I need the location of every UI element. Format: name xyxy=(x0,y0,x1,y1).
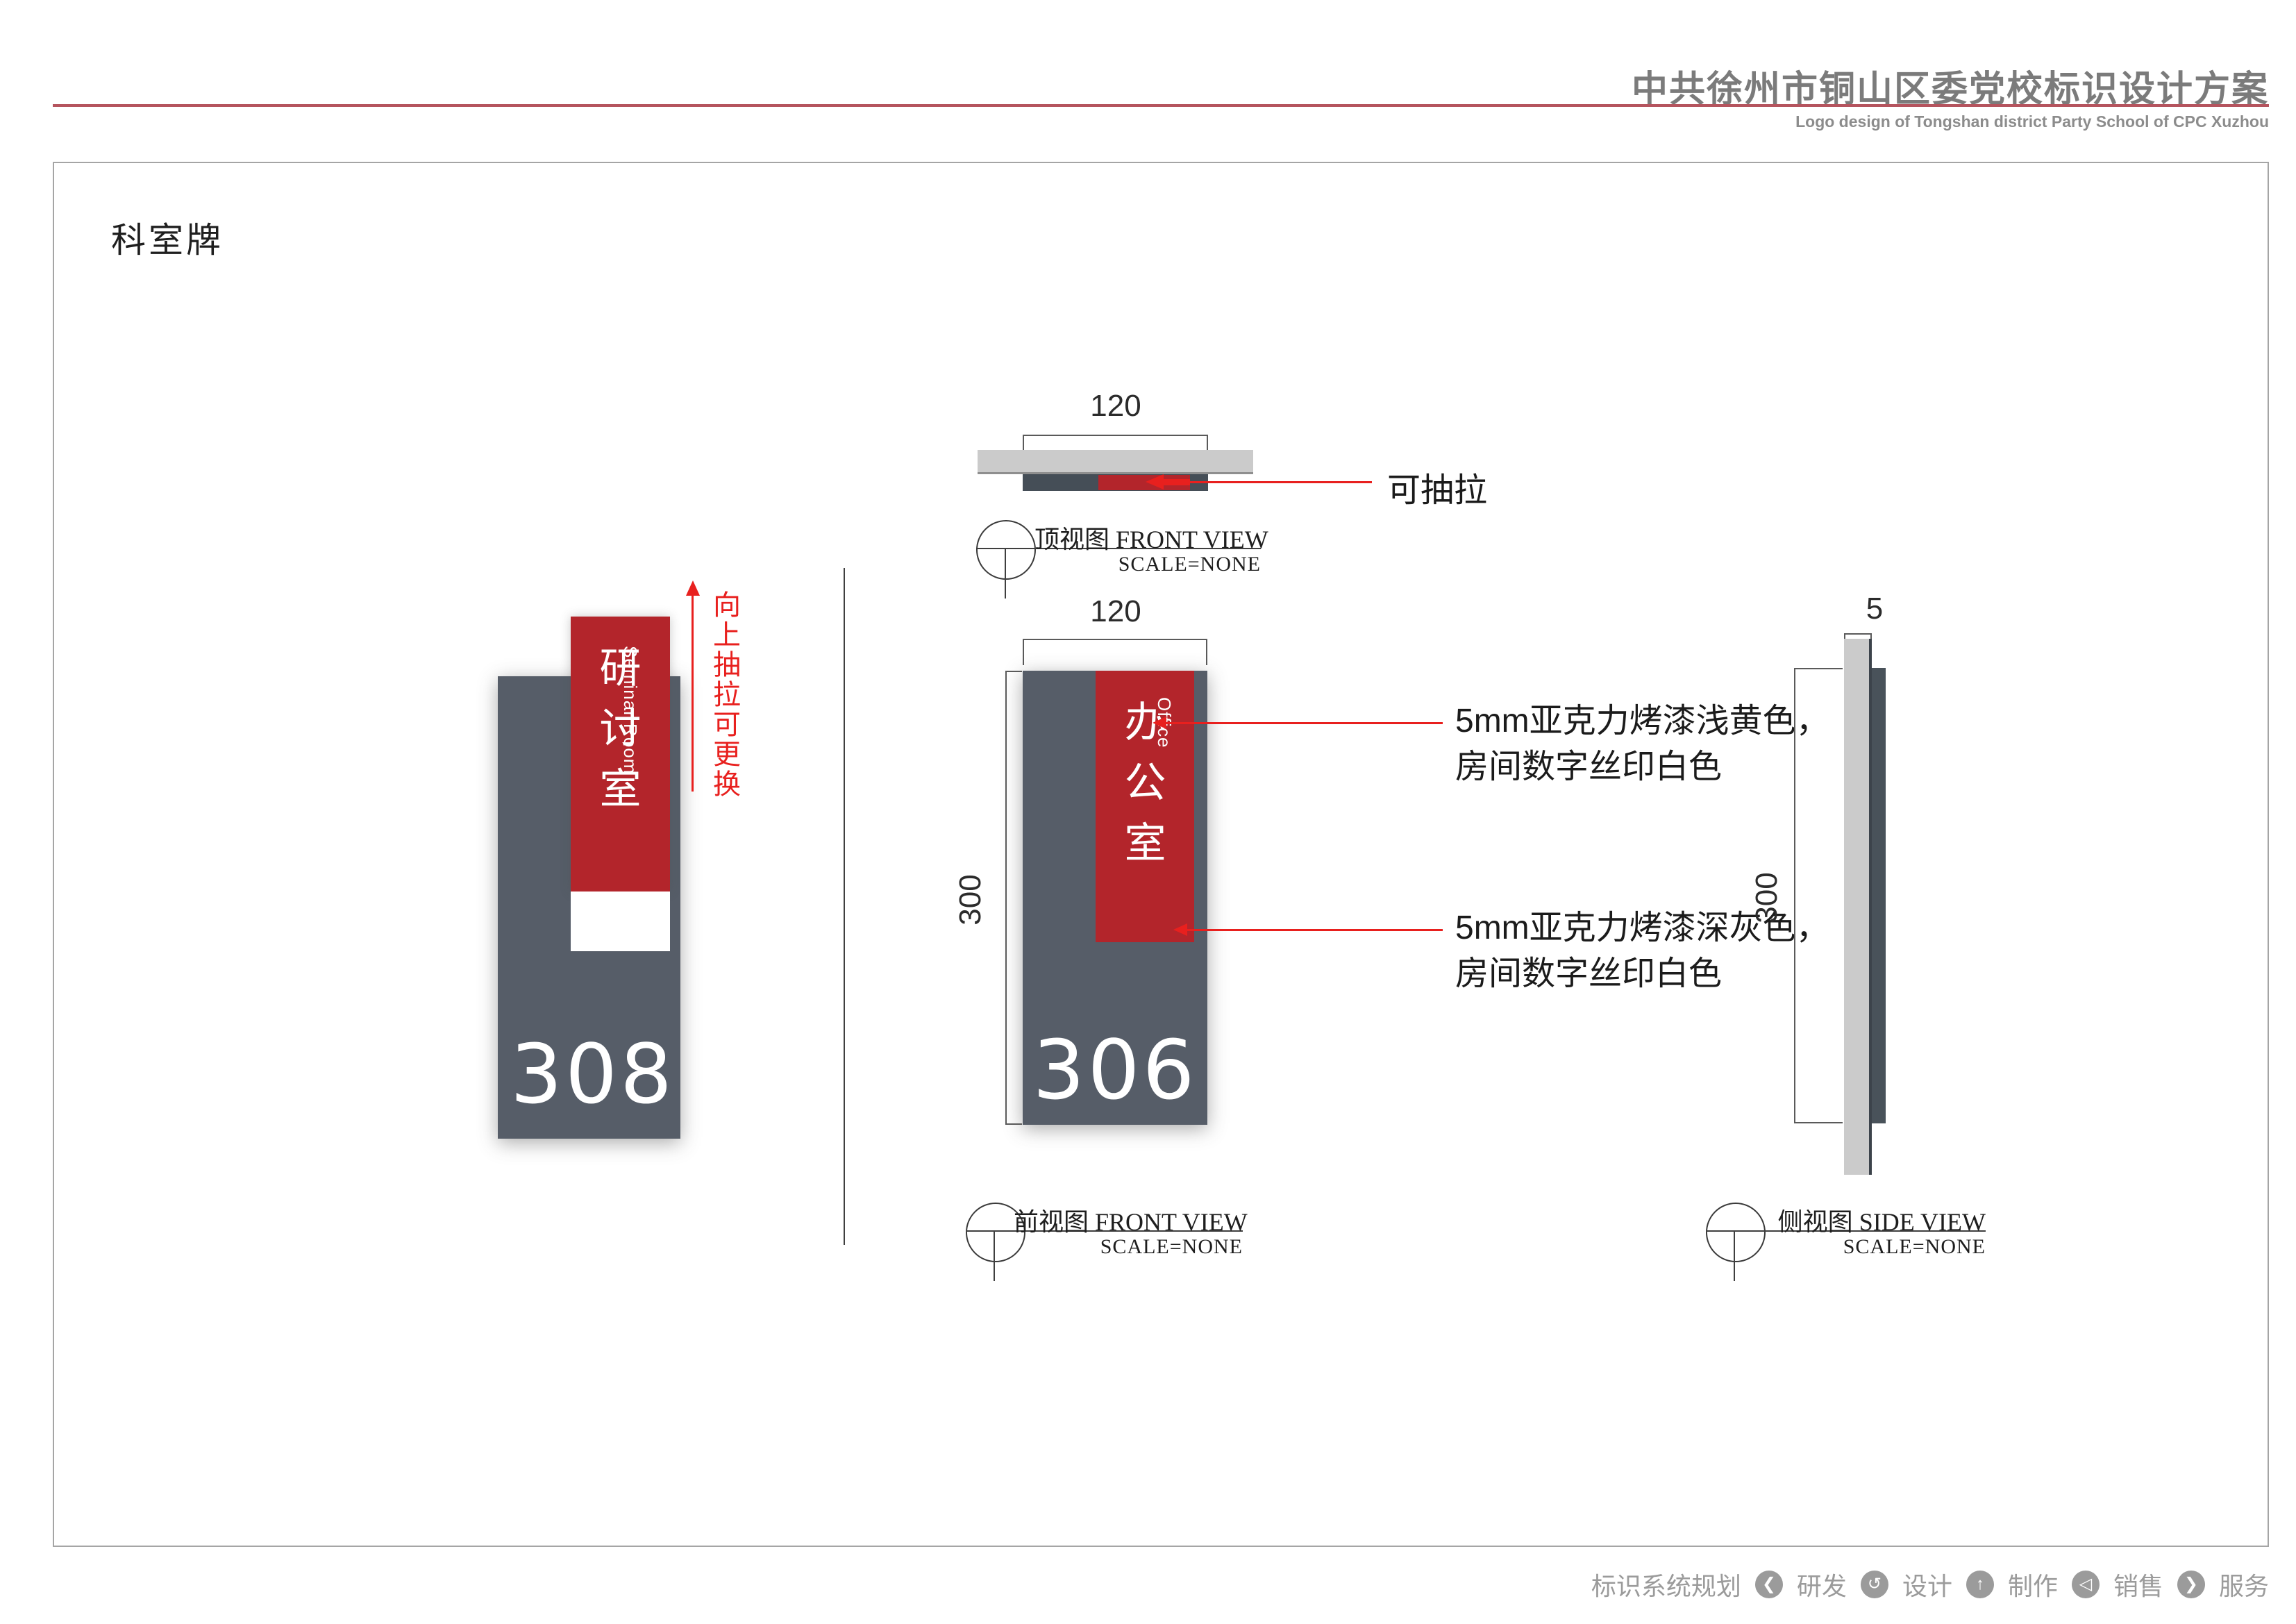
view-label-en: FRONT VIEW xyxy=(1095,1208,1248,1236)
dimension-tick xyxy=(1023,639,1024,665)
seminar-room-number: 308 xyxy=(505,1026,680,1122)
side-view-label: 侧视图 SIDE VIEW xyxy=(1750,1202,1986,1238)
dimension-tick xyxy=(1005,671,1022,672)
leader-arrow-icon xyxy=(1173,923,1187,936)
footer-process-bar: 标识系统规划 ❮ 研发 ↺ 设计 ↑ 制作 ◁ 销售 ❯ 服务 xyxy=(1591,1566,2269,1602)
arrow-up-icon: ↑ xyxy=(1966,1571,1994,1598)
side-view-thickness-dim: 5 xyxy=(1847,592,1902,626)
page-subtitle: Logo design of Tongshan district Party S… xyxy=(1795,112,2269,131)
dimension-line xyxy=(1844,633,1872,635)
top-view-scale: SCALE=NONE xyxy=(1034,553,1261,576)
view-label-cn: 顶视图 xyxy=(1034,526,1109,553)
front-view-height-dim: 300 xyxy=(953,858,988,941)
side-view-height-dim: 300 xyxy=(1750,856,1784,939)
pull-up-arrow-icon xyxy=(686,580,700,596)
seminar-sign-slot xyxy=(571,891,670,951)
pull-arrow-icon xyxy=(1146,474,1164,489)
side-acrylic-bar xyxy=(1844,639,1872,1175)
header-rule xyxy=(53,104,2269,107)
footer-item-rnd: 研发 xyxy=(1797,1566,1847,1602)
leader-line xyxy=(1186,929,1443,931)
leader-line xyxy=(1165,722,1443,724)
footer-item-design: 设计 xyxy=(1902,1566,1952,1602)
view-reference-stem xyxy=(994,1231,995,1281)
front-view-label: 前视图 FRONT VIEW xyxy=(1014,1202,1243,1238)
dimension-line xyxy=(1023,435,1208,436)
dimension-line xyxy=(1023,639,1207,640)
pull-arrow-body xyxy=(1162,479,1190,485)
dimension-line xyxy=(1794,668,1795,1123)
chevron-right-icon: ❯ xyxy=(2177,1571,2205,1598)
red-acrylic-note: 5mm亚克力烤漆浅黄色， 房间数字丝印白色 xyxy=(1455,698,1829,790)
view-label-cn: 前视图 xyxy=(1014,1208,1089,1236)
top-view-label: 顶视图 FRONT VIEW xyxy=(1034,519,1261,555)
leader-arrow-icon xyxy=(1153,717,1166,729)
view-reference-stem xyxy=(1005,549,1006,598)
rotate-icon: ↺ xyxy=(1861,1571,1888,1598)
side-view-scale: SCALE=NONE xyxy=(1750,1235,1986,1259)
divider-line xyxy=(844,568,845,1245)
front-view-scale: SCALE=NONE xyxy=(1014,1235,1243,1259)
dimension-tick xyxy=(1207,435,1208,450)
wall-section-bar xyxy=(978,450,1253,474)
side-panel-bar xyxy=(1872,668,1886,1123)
chevron-left-icon: ❮ xyxy=(1755,1571,1783,1598)
footer-item-sales: 销售 xyxy=(2113,1566,2163,1602)
leader-line xyxy=(1190,481,1372,483)
view-label-en: SIDE VIEW xyxy=(1859,1208,1986,1236)
seminar-room-name-en: Seminar Room xyxy=(619,646,641,774)
red-acrylic-note-line1: 5mm亚克力烤漆浅黄色， xyxy=(1455,698,1829,744)
view-label-cn: 侧视图 xyxy=(1778,1208,1853,1236)
pull-up-note: 向上抽拉可更换 xyxy=(704,590,744,799)
pull-out-note: 可抽拉 xyxy=(1387,462,1487,511)
dimension-tick xyxy=(1794,1122,1843,1123)
view-reference-icon xyxy=(976,520,1036,580)
footer-item-planning: 标识系统规划 xyxy=(1591,1566,1741,1602)
gray-acrylic-note-line2: 房间数字丝印白色 xyxy=(1455,951,1829,997)
dimension-tick xyxy=(1005,1123,1022,1125)
view-label-en: FRONT VIEW xyxy=(1116,526,1268,553)
design-sheet: 中共徐州市铜山区委党校标识设计方案 Logo design of Tongsha… xyxy=(0,0,2296,1624)
view-reference-stem xyxy=(1734,1231,1735,1281)
triangle-left-icon: ◁ xyxy=(2072,1571,2100,1598)
footer-item-service: 服务 xyxy=(2219,1566,2269,1602)
dimension-tick xyxy=(1794,668,1843,669)
office-room-number: 306 xyxy=(1023,1022,1207,1118)
top-view-width-dim: 120 xyxy=(1062,389,1169,424)
dimension-tick xyxy=(1023,435,1024,450)
red-acrylic-note-line2: 房间数字丝印白色 xyxy=(1455,744,1829,790)
section-title: 科室牌 xyxy=(111,212,224,262)
footer-item-production: 制作 xyxy=(2008,1566,2058,1602)
front-view-width-dim: 120 xyxy=(1062,594,1169,629)
dimension-tick xyxy=(1206,639,1207,665)
pull-up-arrow-line xyxy=(692,594,694,792)
dimension-line xyxy=(1005,671,1007,1125)
